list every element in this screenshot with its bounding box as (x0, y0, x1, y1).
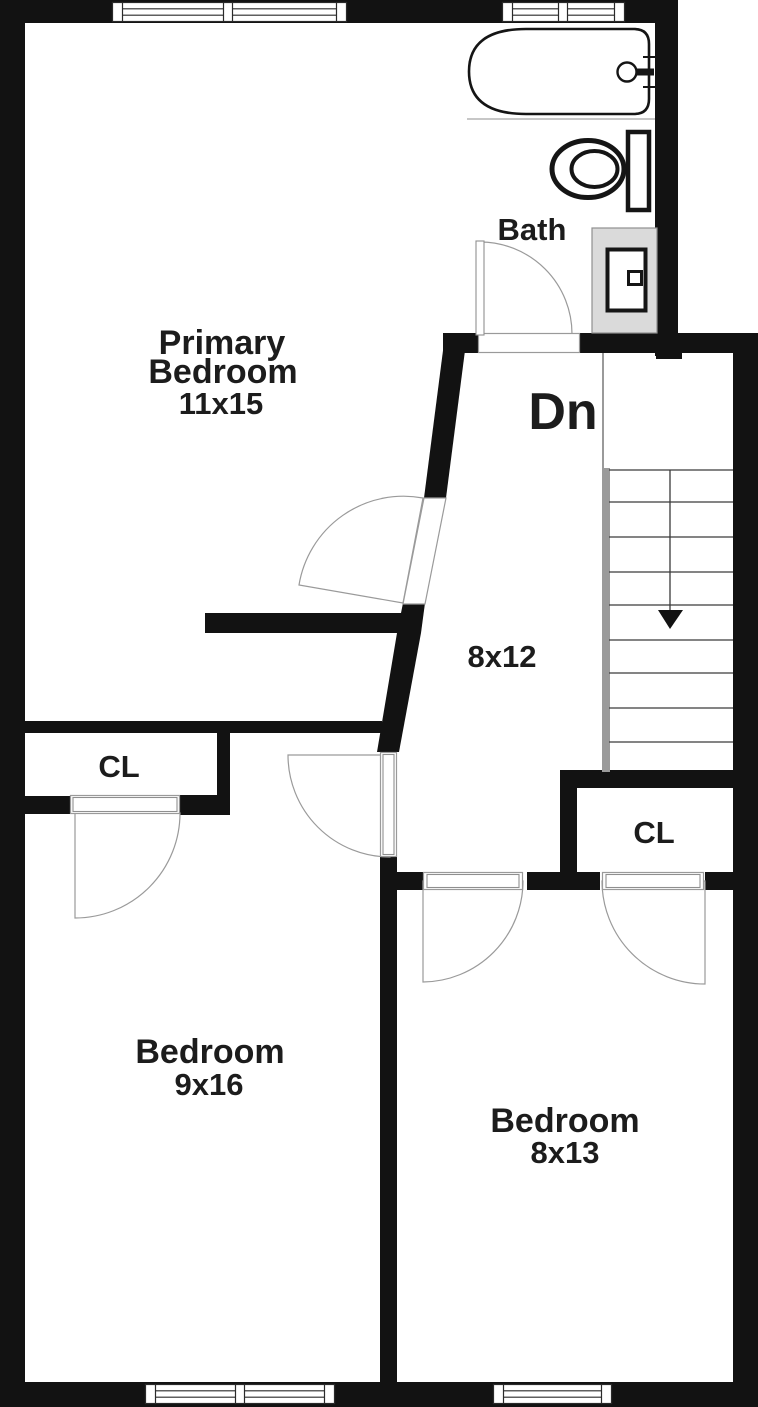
wall-right-upper (655, 0, 678, 356)
wall-hall-south-a (388, 872, 423, 890)
wall-jog (580, 333, 758, 353)
room-label-bedroom-left: Bedroom (135, 1033, 284, 1071)
door-leaf (606, 875, 700, 888)
toilet-tank (628, 132, 649, 210)
stairs-down-label: Dn (528, 383, 597, 441)
door-leaf (476, 241, 484, 335)
window-mullion (224, 3, 233, 22)
window-cap (494, 1385, 504, 1404)
room-label-bath: Bath (498, 212, 567, 247)
room-dims-primary-bedroom: 11x15 (179, 386, 264, 421)
window-bath (503, 3, 625, 22)
window-cap (113, 3, 123, 22)
wall-notch (656, 353, 682, 359)
door-opening (479, 334, 580, 353)
window-cap (503, 3, 513, 22)
room-label-closet-left: CL (98, 749, 139, 784)
door-leaf (427, 875, 519, 888)
window-cap (602, 1385, 612, 1404)
window-bedroom-left (146, 1385, 335, 1404)
floor-plan-page: Primary Bedroom 11x15 Bath Dn 8x12 CL CL… (0, 0, 758, 1407)
window-frame (494, 1385, 612, 1404)
wall-hall-south-c (705, 872, 733, 890)
toilet-bowl-inner (572, 151, 618, 187)
wall-bedroom-separator (380, 857, 397, 1382)
floor-plan: Primary Bedroom 11x15 Bath Dn 8x12 CL CL… (0, 0, 758, 1407)
window-primary-bedroom (113, 3, 347, 22)
wall-partial-primary (205, 613, 420, 633)
window-mullion (236, 1385, 245, 1404)
wall-bottom (0, 1382, 758, 1407)
window-cap (337, 3, 347, 22)
stair-stringer (602, 468, 610, 772)
door-leaf (73, 798, 177, 812)
window-cap (615, 3, 625, 22)
wall-left (0, 0, 25, 1407)
window-cap (325, 1385, 335, 1404)
room-dims-hall: 8x12 (468, 639, 537, 674)
door-leaf (383, 755, 394, 855)
room-label-closet-right: CL (633, 815, 674, 850)
window-mullion (559, 3, 568, 22)
wall-closet-right-top (560, 770, 733, 788)
wall-closet-left-bottom-a (25, 796, 70, 814)
wall-closet-left-bottom-b (180, 795, 230, 815)
window-cap (146, 1385, 156, 1404)
window-bedroom-right (494, 1385, 612, 1404)
room-dims-bedroom-right: 8x13 (531, 1135, 600, 1170)
sink-drain (629, 272, 642, 285)
wall-closet-left-top (20, 721, 382, 733)
room-dims-bedroom-left: 9x16 (175, 1067, 244, 1102)
faucet-knob (618, 63, 637, 82)
wall-right-lower (733, 333, 758, 1407)
